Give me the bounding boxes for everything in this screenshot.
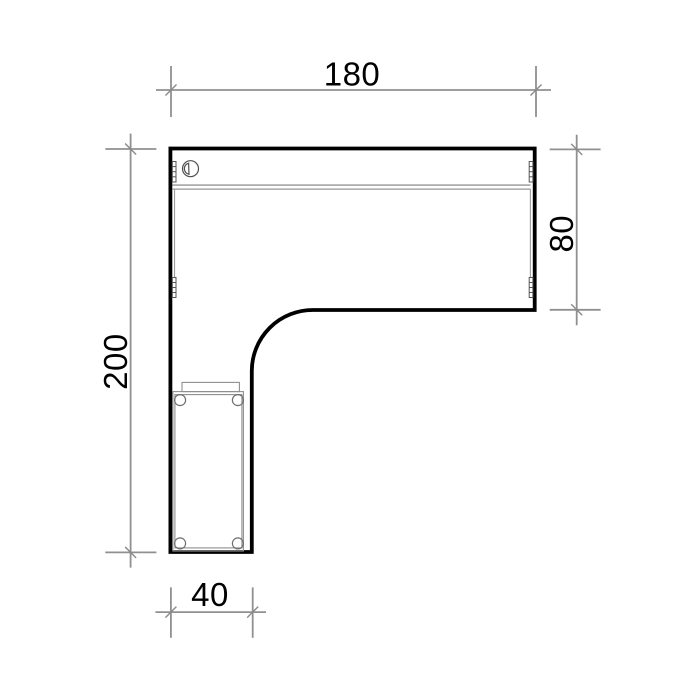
svg-text:80: 80 xyxy=(543,215,580,253)
svg-text:40: 40 xyxy=(191,576,229,613)
svg-text:200: 200 xyxy=(97,333,134,390)
svg-text:180: 180 xyxy=(324,55,381,92)
